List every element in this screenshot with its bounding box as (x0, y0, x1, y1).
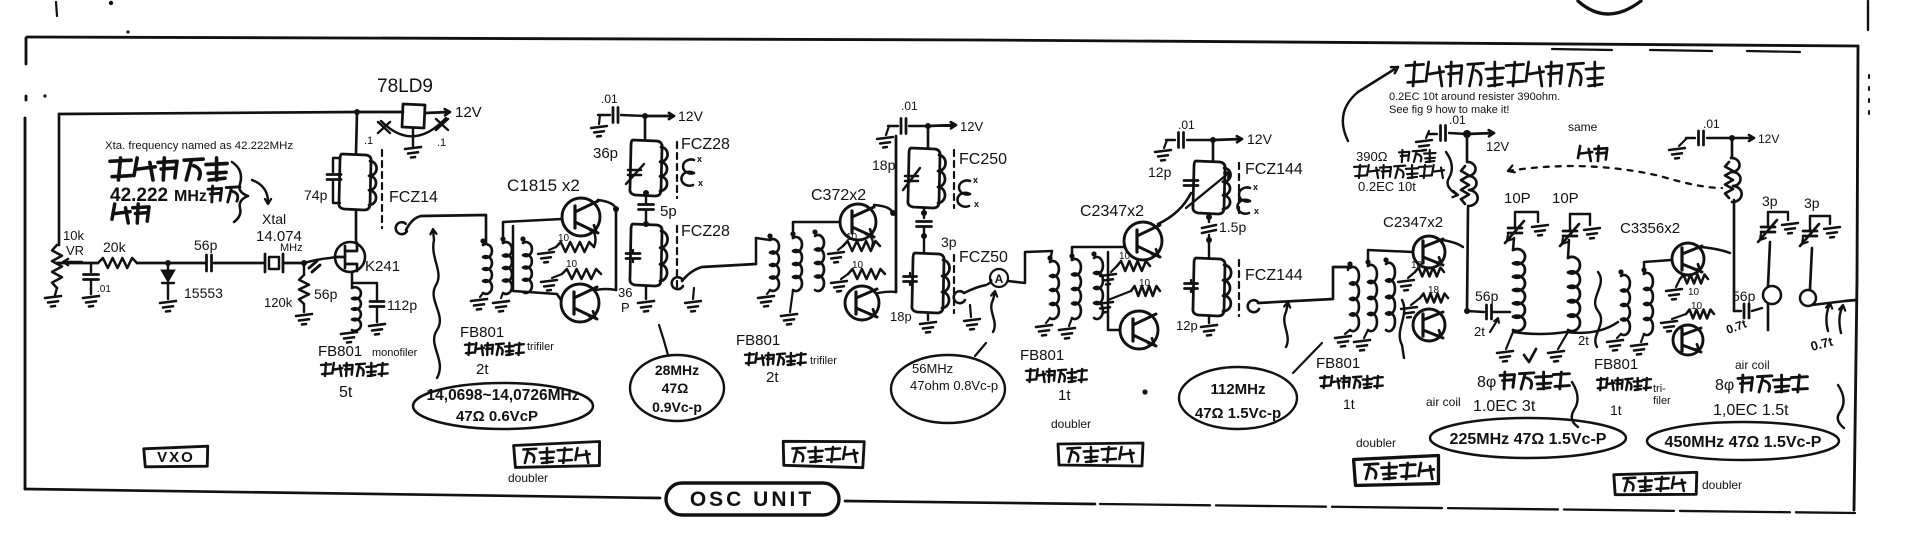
svg-text:8φ: 8φ (1477, 374, 1496, 391)
svg-text:10: 10 (558, 233, 570, 244)
svg-text:x: x (697, 154, 702, 164)
svg-text:0.9Vc-p: 0.9Vc-p (652, 399, 702, 415)
svg-text:12V: 12V (1758, 132, 1779, 146)
svg-text:C372x2: C372x2 (811, 187, 866, 204)
svg-text:doubler: doubler (1356, 436, 1396, 450)
svg-text:8φ: 8φ (1715, 377, 1734, 394)
svg-text:10: 10 (1688, 287, 1700, 298)
svg-text:MHz: MHz (280, 242, 303, 254)
svg-text:5t: 5t (339, 384, 353, 401)
svg-text:Xtal: Xtal (262, 211, 286, 227)
svg-text:C2347x2: C2347x2 (1383, 214, 1443, 231)
svg-text:12V: 12V (678, 108, 704, 124)
svg-text:.01: .01 (1703, 117, 1720, 131)
svg-text:P: P (621, 300, 630, 315)
svg-text:12V: 12V (455, 104, 482, 121)
svg-text:2t: 2t (476, 361, 489, 378)
svg-text:10: 10 (1691, 301, 1703, 312)
svg-text:0.2EC 10t around resister 390o: 0.2EC 10t around resister 390ohm. (1389, 91, 1560, 103)
svg-text:10P: 10P (1504, 190, 1531, 207)
svg-text:.1: .1 (364, 135, 373, 147)
svg-text:390Ω: 390Ω (1356, 149, 1388, 164)
svg-text:.01: .01 (601, 92, 618, 106)
svg-text:FCZ144: FCZ144 (1245, 267, 1303, 284)
svg-text:0.2EC 10t: 0.2EC 10t (1358, 179, 1416, 194)
svg-text:trifiler: trifiler (527, 341, 554, 353)
svg-text:3p: 3p (941, 234, 957, 250)
svg-text:x: x (1253, 182, 1258, 192)
svg-text:FB801: FB801 (318, 343, 362, 360)
svg-text:112MHz: 112MHz (1210, 381, 1265, 398)
svg-text:14,0698~14,0726MHz: 14,0698~14,0726MHz (427, 387, 580, 404)
svg-text:18p: 18p (890, 309, 912, 324)
svg-text:tri-: tri- (1653, 383, 1666, 395)
svg-text:18: 18 (1428, 285, 1440, 296)
svg-text:56MHz: 56MHz (912, 361, 953, 376)
svg-text:doubler: doubler (1051, 417, 1091, 431)
svg-text:A: A (995, 272, 1004, 286)
svg-text:x: x (973, 175, 978, 185)
svg-text:MHz: MHz (174, 188, 207, 205)
svg-text:47Ω 1.5Vc-p: 47Ω 1.5Vc-p (1195, 405, 1281, 422)
svg-text:Xta. frequency named as 42.222: Xta. frequency named as 42.222MHz (105, 140, 293, 152)
svg-text:36: 36 (618, 285, 632, 300)
svg-text:12V: 12V (960, 119, 983, 134)
svg-text:K241: K241 (365, 258, 400, 275)
svg-text:10: 10 (566, 259, 578, 270)
svg-text:47Ω: 47Ω (662, 380, 689, 396)
svg-text:3p: 3p (1804, 195, 1820, 211)
svg-text:56p: 56p (194, 237, 218, 253)
svg-text:56p: 56p (314, 286, 338, 302)
svg-text:2t: 2t (1474, 324, 1485, 339)
svg-text:OSC UNIT: OSC UNIT (690, 488, 814, 511)
svg-text:450MHz 47Ω 1.5Vc-P: 450MHz 47Ω 1.5Vc-P (1665, 434, 1822, 451)
svg-text:C2347x2: C2347x2 (1080, 203, 1144, 220)
svg-text:10: 10 (1119, 251, 1131, 262)
svg-text:FB801: FB801 (460, 324, 504, 341)
svg-text:x: x (1254, 206, 1259, 216)
svg-text:.01: .01 (901, 99, 918, 113)
svg-text:FB801: FB801 (1020, 347, 1064, 364)
svg-text:10k: 10k (63, 228, 84, 243)
svg-text:filer: filer (1653, 395, 1671, 407)
svg-text:1.5p: 1.5p (1219, 219, 1246, 235)
svg-text:12V: 12V (1247, 131, 1273, 147)
svg-text:FCZ50: FCZ50 (959, 249, 1008, 266)
svg-text:10P: 10P (1552, 190, 1579, 207)
svg-text:.01: .01 (1178, 118, 1195, 132)
svg-text:2t: 2t (766, 369, 779, 386)
svg-text:20k: 20k (103, 239, 127, 255)
svg-text:3p: 3p (1762, 193, 1778, 209)
svg-text:74p: 74p (304, 187, 328, 203)
svg-text:trifiler: trifiler (810, 355, 837, 367)
svg-text:FB801: FB801 (736, 332, 780, 349)
svg-text:same: same (1568, 120, 1598, 134)
svg-text:FCZ28: FCZ28 (681, 223, 730, 240)
svg-text:doubler: doubler (1702, 478, 1742, 492)
svg-text:12p: 12p (1148, 164, 1172, 180)
svg-text:.01: .01 (97, 284, 111, 295)
svg-text:12p: 12p (1176, 318, 1198, 333)
svg-text:.1: .1 (437, 137, 446, 149)
svg-text:47ohm 0.8Vc-p: 47ohm 0.8Vc-p (910, 378, 998, 393)
svg-text:FB801: FB801 (1594, 356, 1638, 373)
svg-text:1.0EC 3t: 1.0EC 3t (1473, 398, 1536, 415)
svg-text:x: x (974, 199, 979, 209)
svg-text:1t: 1t (1610, 402, 1622, 418)
svg-text:12V: 12V (1486, 139, 1509, 154)
svg-text:doubler: doubler (508, 471, 548, 485)
svg-text:air coil: air coil (1735, 358, 1770, 372)
svg-text:air coil: air coil (1426, 395, 1461, 409)
svg-text:10: 10 (852, 260, 864, 271)
svg-text:56p: 56p (1475, 288, 1499, 304)
svg-text:monofiler: monofiler (372, 347, 418, 359)
svg-text:x: x (698, 178, 703, 188)
svg-text:1,0EC 1.5t: 1,0EC 1.5t (1713, 402, 1789, 419)
svg-text:FCZ14: FCZ14 (389, 189, 438, 206)
svg-text:See fig 9 how to make it!: See fig 9 how to make it! (1389, 104, 1509, 116)
svg-text:1t: 1t (1058, 387, 1071, 404)
svg-text:10: 10 (846, 232, 858, 243)
svg-text:1t: 1t (1343, 396, 1355, 412)
svg-text:FCZ28: FCZ28 (681, 136, 730, 153)
svg-text:56p: 56p (1732, 288, 1756, 304)
svg-text:5p: 5p (660, 203, 677, 220)
svg-text:FCZ144: FCZ144 (1245, 161, 1303, 178)
svg-text:78LD9: 78LD9 (377, 76, 433, 97)
svg-text:18p: 18p (872, 157, 896, 173)
svg-text:36p: 36p (593, 145, 618, 162)
svg-text:C1815 x2: C1815 x2 (507, 176, 580, 195)
svg-text:15553: 15553 (184, 285, 223, 301)
svg-text:C3356x2: C3356x2 (1620, 220, 1680, 237)
svg-text:10: 10 (1139, 278, 1151, 289)
svg-text:VXO: VXO (157, 449, 195, 466)
svg-text:VR: VR (66, 243, 84, 258)
svg-text:2t: 2t (1578, 333, 1589, 348)
svg-text:10: 10 (1411, 260, 1423, 271)
svg-text:28MHz: 28MHz (655, 362, 699, 378)
svg-text:120k: 120k (264, 295, 293, 310)
svg-text:225MHz 47Ω 1.5Vc-P: 225MHz 47Ω 1.5Vc-P (1450, 431, 1607, 448)
svg-text:47Ω 0.6VcP: 47Ω 0.6VcP (456, 408, 538, 425)
svg-text:112p: 112p (387, 297, 417, 313)
svg-text:FB801: FB801 (1316, 355, 1360, 372)
svg-text:FC250: FC250 (959, 151, 1007, 168)
